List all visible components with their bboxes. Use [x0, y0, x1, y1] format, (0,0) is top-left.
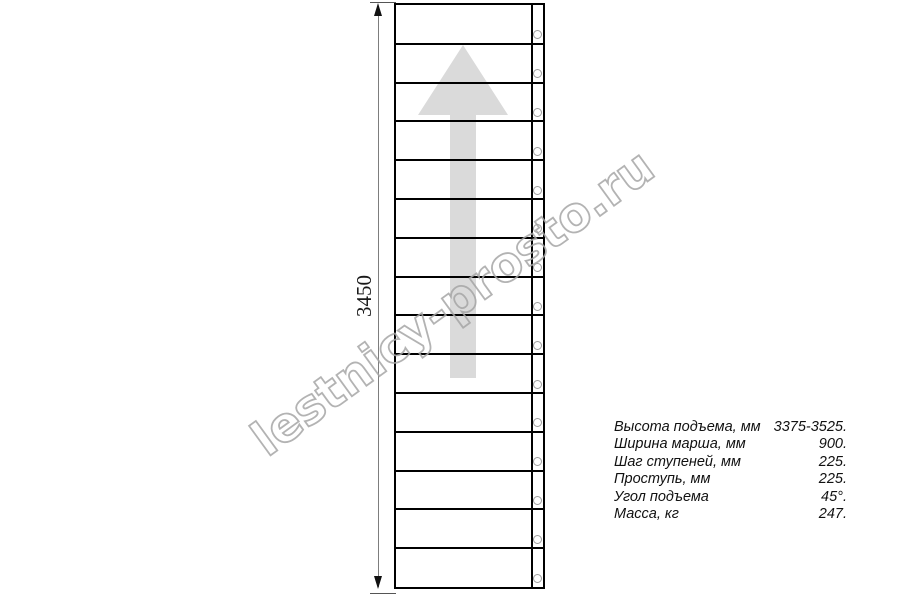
- step-line: [396, 392, 543, 394]
- screw-circle: [533, 457, 542, 466]
- spec-label: Высота подъема, мм: [614, 419, 761, 436]
- step-line: [396, 120, 543, 122]
- spec-row: Ширина марша, мм900.: [614, 436, 847, 453]
- spec-row: Угол подъема45°.: [614, 489, 847, 506]
- screw-circle: [533, 108, 542, 117]
- spec-label: Угол подъема: [614, 489, 709, 506]
- step-line: [396, 353, 543, 355]
- spec-value: 900.: [819, 436, 847, 453]
- step-line: [396, 159, 543, 161]
- dimension-extension-bottom: [370, 593, 396, 594]
- screw-circle: [533, 69, 542, 78]
- spec-label: Масса, кг: [614, 506, 679, 523]
- step-line: [396, 43, 543, 45]
- spec-value: 3375-3525.: [774, 419, 847, 436]
- step-line: [396, 237, 543, 239]
- spec-row: Шаг ступеней, мм225.: [614, 454, 847, 471]
- spec-label: Проступь, мм: [614, 471, 710, 488]
- screw-circle: [533, 147, 542, 156]
- dimension-label: 3450: [352, 269, 376, 323]
- spec-row: Проступь, мм225.: [614, 471, 847, 488]
- spec-value: 247.: [819, 506, 847, 523]
- screw-circle: [533, 263, 542, 272]
- step-line: [396, 470, 543, 472]
- screw-circle: [533, 302, 542, 311]
- spec-row: Масса, кг247.: [614, 506, 847, 523]
- staircase: [394, 3, 545, 589]
- screw-circle: [533, 418, 542, 427]
- step-line: [396, 198, 543, 200]
- screw-circle: [533, 30, 542, 39]
- step-line: [396, 314, 543, 316]
- screw-circle: [533, 496, 542, 505]
- step-line: [396, 508, 543, 510]
- screw-circle: [533, 186, 542, 195]
- dimension-arrow-down-icon: [374, 576, 382, 589]
- screw-circle: [533, 341, 542, 350]
- step-line: [396, 82, 543, 84]
- spec-value: 225.: [819, 454, 847, 471]
- dimension-arrow-up-icon: [374, 3, 382, 16]
- screw-circle: [533, 380, 542, 389]
- spec-label: Ширина марша, мм: [614, 436, 746, 453]
- specs-table: Высота подъема, мм3375-3525.Ширина марша…: [614, 419, 847, 523]
- step-line: [396, 431, 543, 433]
- dimension-line: [378, 7, 379, 587]
- screw-circle: [533, 224, 542, 233]
- step-line: [396, 276, 543, 278]
- step-line: [396, 547, 543, 549]
- screw-circle: [533, 574, 542, 583]
- spec-value: 225.: [819, 471, 847, 488]
- screw-circle: [533, 535, 542, 544]
- technical-drawing-canvas: 3450 Высота подъема, мм3375-3525.Ширина …: [0, 0, 900, 600]
- spec-value: 45°.: [821, 489, 847, 506]
- spec-label: Шаг ступеней, мм: [614, 454, 741, 471]
- spec-row: Высота подъема, мм3375-3525.: [614, 419, 847, 436]
